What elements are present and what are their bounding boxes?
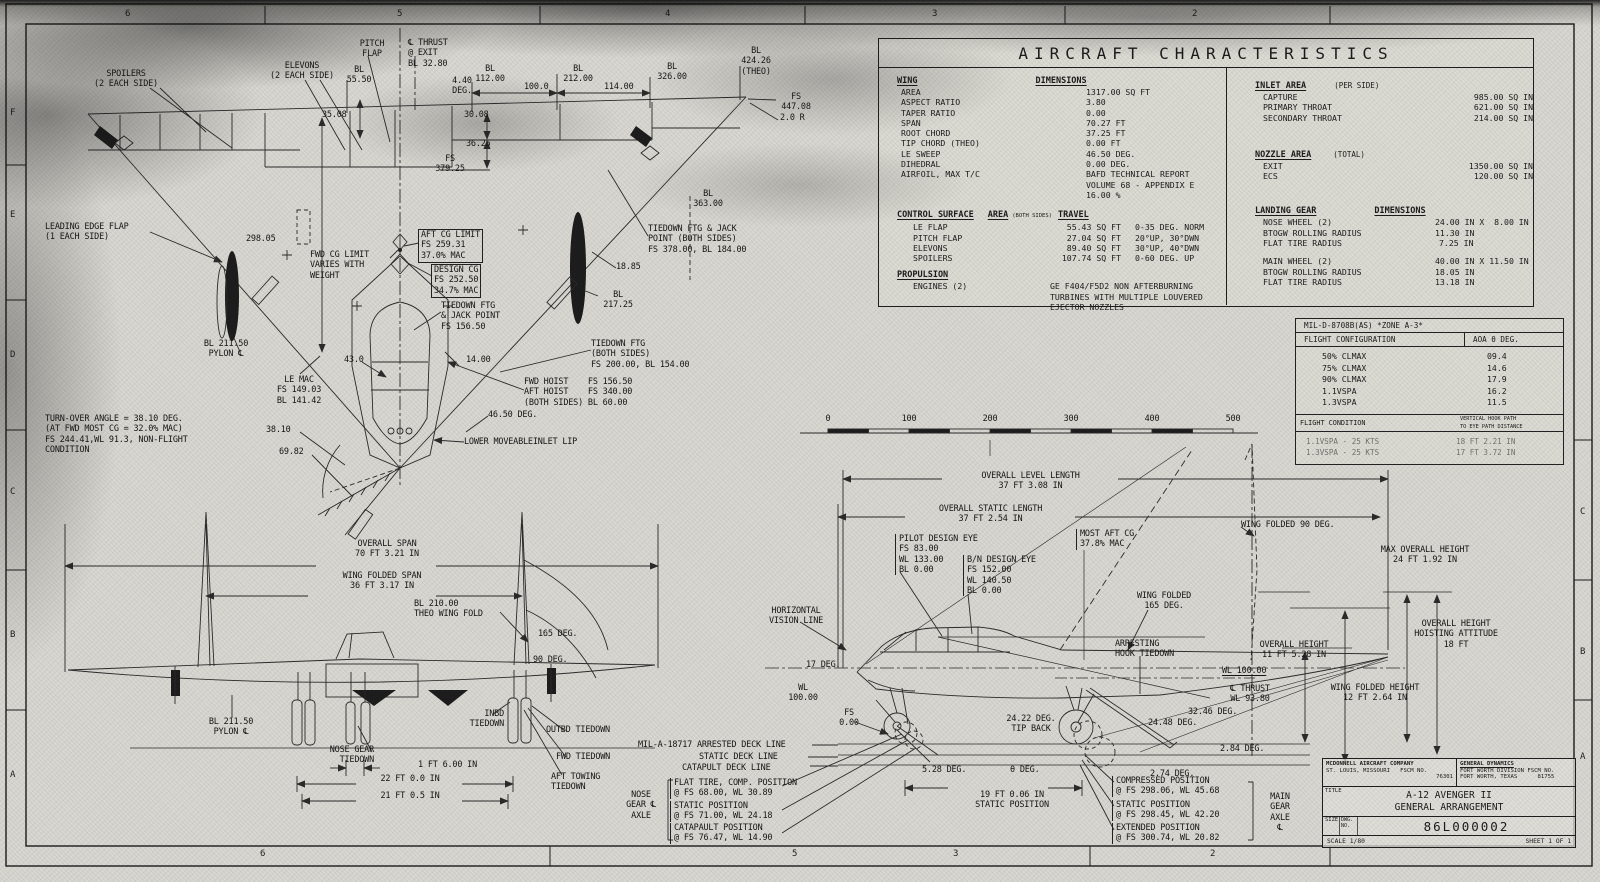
title-block-mcdonnell: MCDONNELL AIRCRAFT COMPANY ST. LOUIS, MI… <box>1323 759 1457 786</box>
scale-tick-500: 500 <box>1218 414 1248 424</box>
front-label-outbd-tiedown: OUTBD TIEDOWN <box>546 725 610 735</box>
plan-label-fs-447-08: FS 447.08 <box>772 92 820 113</box>
side-label-deg-17: 17 DEG. <box>806 660 840 670</box>
hook-path-header: VERTICAL HOOK PATH TO EYE PATH DISTANCE <box>1460 415 1522 431</box>
zone-bottom-3: 3 <box>953 849 958 859</box>
zone-bottom-6: 6 <box>260 849 265 859</box>
plan-label-leading-edge-flap: LEADING EDGE FLAP (1 EACH SIDE) <box>45 222 129 243</box>
drawing-number: 86L000002 <box>1358 819 1575 834</box>
zone-left-e: E <box>10 210 15 220</box>
side-label-tip-back: 24.22 DEG. TIP BACK <box>990 714 1072 735</box>
plan-label-le-mac: LE MAC FS 149.03 BL 141.42 <box>264 375 334 406</box>
plan-label-fs-379-25: FS 379.25 <box>428 154 472 175</box>
mil-table-header: MIL-D-8708B(AS) *ZONE A-3* <box>1296 319 1563 333</box>
side-label-overall-static-length: OVERALL STATIC LENGTH 37 FT 2.54 IN <box>913 504 1068 525</box>
landing-gear-header: LANDING GEAR <box>1255 206 1316 216</box>
side-label-thrust-wl: ℄ THRUST WL 93.80 <box>1218 684 1282 705</box>
plan-label-inlet-lip: LOWER MOVEABLEINLET LIP <box>464 437 577 447</box>
dwg-no-label: DWG. NO. <box>1340 817 1358 835</box>
plan-label-elevons: ELEVONS (2 EACH SIDE) <box>258 61 346 82</box>
plan-label-fwd-cg-limit: FWD CG LIMIT VARIES WITH WEIGHT <box>310 250 369 281</box>
scale-bar-drawing <box>800 429 1258 456</box>
zone-top-3: 3 <box>932 9 937 19</box>
zone-left-a: A <box>10 770 15 780</box>
plan-label-dim-36-25: 36.25 <box>466 139 491 149</box>
inlet-area-header: INLET AREA <box>1255 81 1306 91</box>
side-label-overall-level-length: OVERALL LEVEL LENGTH 37 FT 3.08 IN <box>948 471 1113 492</box>
zone-bottom-2: 2 <box>1210 849 1215 859</box>
side-label-static-deck-line: STATIC DECK LINE <box>699 752 778 762</box>
side-label-wing-folded-90: WING FOLDED 90 DEG. <box>1241 520 1334 530</box>
control-surface-header: CONTROL SURFACE <box>897 210 974 220</box>
side-label-deg-2-84: 2.84 DEG. <box>1220 744 1264 754</box>
drawing-title: A-12 AVENGER II GENERAL ARRANGEMENT <box>1323 787 1575 814</box>
scale-tick-400: 400 <box>1137 414 1167 424</box>
propulsion-header: PROPULSION <box>897 270 948 280</box>
front-label-deg-165: 165 DEG. <box>538 629 577 639</box>
side-label-nose-static-position: STATIC POSITION @ FS 71.00, WL 24.18 <box>670 801 772 822</box>
drawing-sheet: 6 5 4 3 2 6 5 3 2 F E D C B A C B A 0 10… <box>0 0 1600 882</box>
side-label-main-static-position: STATIC POSITION @ FS 298.45, WL 42.20 <box>1112 800 1219 821</box>
plan-label-radius-2-0: 2.0 R <box>780 113 805 123</box>
plan-label-pylon-cl: BL 211.50 PYLON ℄ <box>193 339 259 360</box>
side-label-deg-5-28: 5.28 DEG. <box>922 765 966 775</box>
side-label-wl-100-right: WL 100.00 <box>1222 666 1266 676</box>
char-table-title: AIRCRAFT CHARACTERISTICS <box>879 39 1533 68</box>
front-label-dim-21ft: 21 FT 0.5 IN <box>360 791 460 801</box>
plan-label-bl-363: BL 363.00 <box>686 189 730 210</box>
plan-label-dim-298-05: 298.05 <box>246 234 276 244</box>
side-label-compressed-position: COMPRESSED POSITION @ FS 298.06, WL 45.6… <box>1112 776 1219 797</box>
side-label-hoisting-height: OVERALL HEIGHT HOISTING ATTITUDE 18 FT <box>1390 619 1522 650</box>
plan-label-spoilers: SPOILERS (2 EACH SIDE) <box>80 69 172 90</box>
side-label-catapult-deck-line: CATAPULT DECK LINE <box>682 763 771 773</box>
side-label-static-position-dim: 19 FT 0.06 IN STATIC POSITION <box>952 790 1072 811</box>
plan-label-aft-cg-limit: AFT CG LIMIT FS 259.31 37.0% MAC <box>418 229 483 263</box>
front-label-nose-gear-tiedown: NOSE GEAR TIEDOWN <box>304 745 374 766</box>
zone-top-5: 5 <box>397 9 402 19</box>
side-label-bn-design-eye: B/N DESIGN EYE FS 152.00 WL 140.50 BL 0.… <box>963 555 1036 596</box>
side-label-arrested-deck-line: MIL-A-18717 ARRESTED DECK LINE <box>638 740 786 750</box>
wing-dimensions-header: DIMENSIONS <box>1035 76 1086 86</box>
scale-tick-200: 200 <box>975 414 1005 424</box>
plan-label-dim-14-00: 14.00 <box>466 355 491 365</box>
zone-right-b: B <box>1580 647 1585 657</box>
plan-label-dim-30-08: 30.08 <box>464 110 489 120</box>
front-label-aft-towing-tiedown: AFT TOWING TIEDOWN <box>551 772 600 793</box>
title-label: TITLE <box>1325 788 1342 794</box>
front-label-inbd-tiedown: INBD TIEDOWN <box>448 709 504 730</box>
front-label-overall-span: OVERALL SPAN 70 FT 3.21 IN <box>320 539 454 560</box>
side-label-deg-32-46: 32.46 DEG. <box>1188 707 1237 717</box>
plan-label-dim-114: 114.00 <box>604 82 634 92</box>
side-label-fs-0: FS 0.00 <box>830 708 868 729</box>
scale-tick-300: 300 <box>1056 414 1086 424</box>
title-block: MCDONNELL AIRCRAFT COMPANY ST. LOUIS, MI… <box>1322 758 1576 848</box>
plan-label-thrust-exit: ℄ THRUST @ EXIT BL 32.80 <box>408 38 448 69</box>
front-label-pylon-cl: BL 211.50 PYLON ℄ <box>196 717 266 738</box>
plan-label-dim-43-0: 43.0 <box>344 355 364 365</box>
side-label-flat-tire-position: FLAT TIRE, COMP. POSITION @ FS 68.00, WL… <box>670 778 797 799</box>
front-label-dim-1ft-6: 1 FT 6.00 IN <box>418 760 477 770</box>
mil-spec-table: MIL-D-8708B(AS) *ZONE A-3* FLIGHT CONFIG… <box>1295 318 1564 465</box>
side-label-catapult-position: CATAPAULT POSITION @ FS 76.47, WL 14.90 <box>670 823 772 844</box>
side-label-nose-gear-axle: NOSE GEAR ℄ AXLE <box>616 790 666 821</box>
plan-label-dim-35-08: 35.08 <box>322 110 347 120</box>
size-label: SIZE <box>1323 817 1340 835</box>
zone-left-b: B <box>10 630 15 640</box>
side-label-wing-folded-165: WING FOLDED 165 DEG. <box>1118 591 1210 612</box>
sheet-label: SHEET 1 OF 1 <box>1526 836 1572 848</box>
plan-label-tiedown-ftg: TIEDOWN FTG (BOTH SIDES) FS 200.00, BL 1… <box>591 339 689 370</box>
front-label-dim-22ft: 22 FT 0.0 IN <box>360 774 460 784</box>
plan-label-bl-112: BL 112.00 <box>468 64 512 85</box>
plan-label-dim-38-10: 38.10 <box>266 425 291 435</box>
plan-label-bl-212: BL 212.00 <box>556 64 600 85</box>
side-label-extended-position: EXTENDED POSITION @ FS 300.74, WL 20.82 <box>1112 823 1219 844</box>
side-label-wl-100-left: WL 100.00 <box>780 683 826 704</box>
plan-label-bl-424-26: BL 424.26 (THEO) <box>732 46 780 77</box>
flight-condition-header: FLIGHT CONDITION <box>1296 419 1460 427</box>
title-block-general-dynamics: GENERAL DYNAMICS FORT WORTH DIVISION FSC… <box>1457 759 1557 786</box>
plan-label-hoist-points: FWD HOIST FS 156.50 AFT HOIST FS 340.00 … <box>524 377 632 408</box>
plan-label-pitch-flap: PITCH FLAP <box>352 39 392 60</box>
scale-tick-0: 0 <box>813 414 843 424</box>
char-table-right-column: INLET AREA(PER SIDE) CAPTURE985.00 SQ IN… <box>1226 68 1533 305</box>
aircraft-characteristics-table: AIRCRAFT CHARACTERISTICS WINGDIMENSIONS … <box>878 38 1534 307</box>
zone-left-f: F <box>10 108 15 118</box>
plan-label-dim-18-85: 18.85 <box>616 262 641 272</box>
front-label-deg-90: 90 DEG. <box>533 655 567 665</box>
plan-label-dim-69-82: 69.82 <box>279 447 304 457</box>
plan-label-sweep-46-50: 46.50 DEG. <box>488 410 537 420</box>
side-label-most-aft-cg: MOST AFT CG 37.8% MAC <box>1076 529 1134 550</box>
side-label-max-overall-height: MAX OVERALL HEIGHT 24 FT 1.92 IN <box>1350 545 1500 566</box>
scale-tick-100: 100 <box>894 414 924 424</box>
front-label-folded-span: WING FOLDED SPAN 36 FT 3.17 IN <box>312 571 452 592</box>
wing-header: WING <box>897 76 917 86</box>
plan-label-bl-217-25: BL 217.25 <box>596 290 640 311</box>
side-label-overall-height: OVERALL HEIGHT 11 FT 5.28 IN <box>1238 640 1350 661</box>
zone-right-c: C <box>1580 507 1585 517</box>
plan-label-dim-100: 100.0 <box>524 82 549 92</box>
char-table-left-column: WINGDIMENSIONS AREA1317.00 SQ FT ASPECT … <box>879 68 1226 305</box>
zone-left-c: C <box>10 487 15 497</box>
side-label-deg-24-48: 24.48 DEG. <box>1148 718 1197 728</box>
plan-label-tiedown-jack-aft: TIEDOWN FTG & JACK POINT (BOTH SIDES) FS… <box>648 224 746 255</box>
scale-label: SCALE 1/80 <box>1327 836 1365 848</box>
side-label-deg-theta: θ DEG. <box>1010 765 1040 775</box>
flight-configuration-header: FLIGHT CONFIGURATION <box>1296 333 1465 346</box>
zone-left-d: D <box>10 350 15 360</box>
plan-label-bl-55-50: BL 55.50 <box>338 65 380 86</box>
zone-bottom-5: 5 <box>792 849 797 859</box>
aoa-header: AOA θ DEG. <box>1465 333 1519 346</box>
front-label-theo-wing-fold: BL 210.00 THEO WING FOLD <box>414 599 483 620</box>
plan-label-tiedown-jack-fwd: TIEDOWN FTG & JACK POINT FS 156.50 <box>441 301 500 332</box>
zone-top-2: 2 <box>1192 9 1197 19</box>
side-label-horizontal-vision-line: HORIZONTAL VISION LINE <box>755 606 837 627</box>
zone-top-4: 4 <box>665 9 670 19</box>
side-label-wing-folded-height: WING FOLDED HEIGHT 12 FT 2.64 IN <box>1300 683 1450 704</box>
plan-label-turn-over-note: TURN-OVER ANGLE = 38.10 DEG. (AT FWD MOS… <box>45 414 188 455</box>
side-label-arresting-hook-tiedown: ARRESTING HOOK TIEDOWN <box>1115 639 1174 660</box>
zone-right-a: A <box>1580 752 1585 762</box>
plan-label-design-cg: DESIGN CG FS 252.50 34.7% MAC <box>431 264 481 298</box>
side-label-main-gear-axle: MAIN GEAR AXLE ℄ <box>1260 792 1300 833</box>
nozzle-area-header: NOZZLE AREA <box>1255 150 1311 160</box>
plan-label-bl-326: BL 326.00 <box>650 62 694 83</box>
zone-top-6: 6 <box>125 9 130 19</box>
front-label-fwd-tiedown: FWD TIEDOWN <box>556 752 610 762</box>
